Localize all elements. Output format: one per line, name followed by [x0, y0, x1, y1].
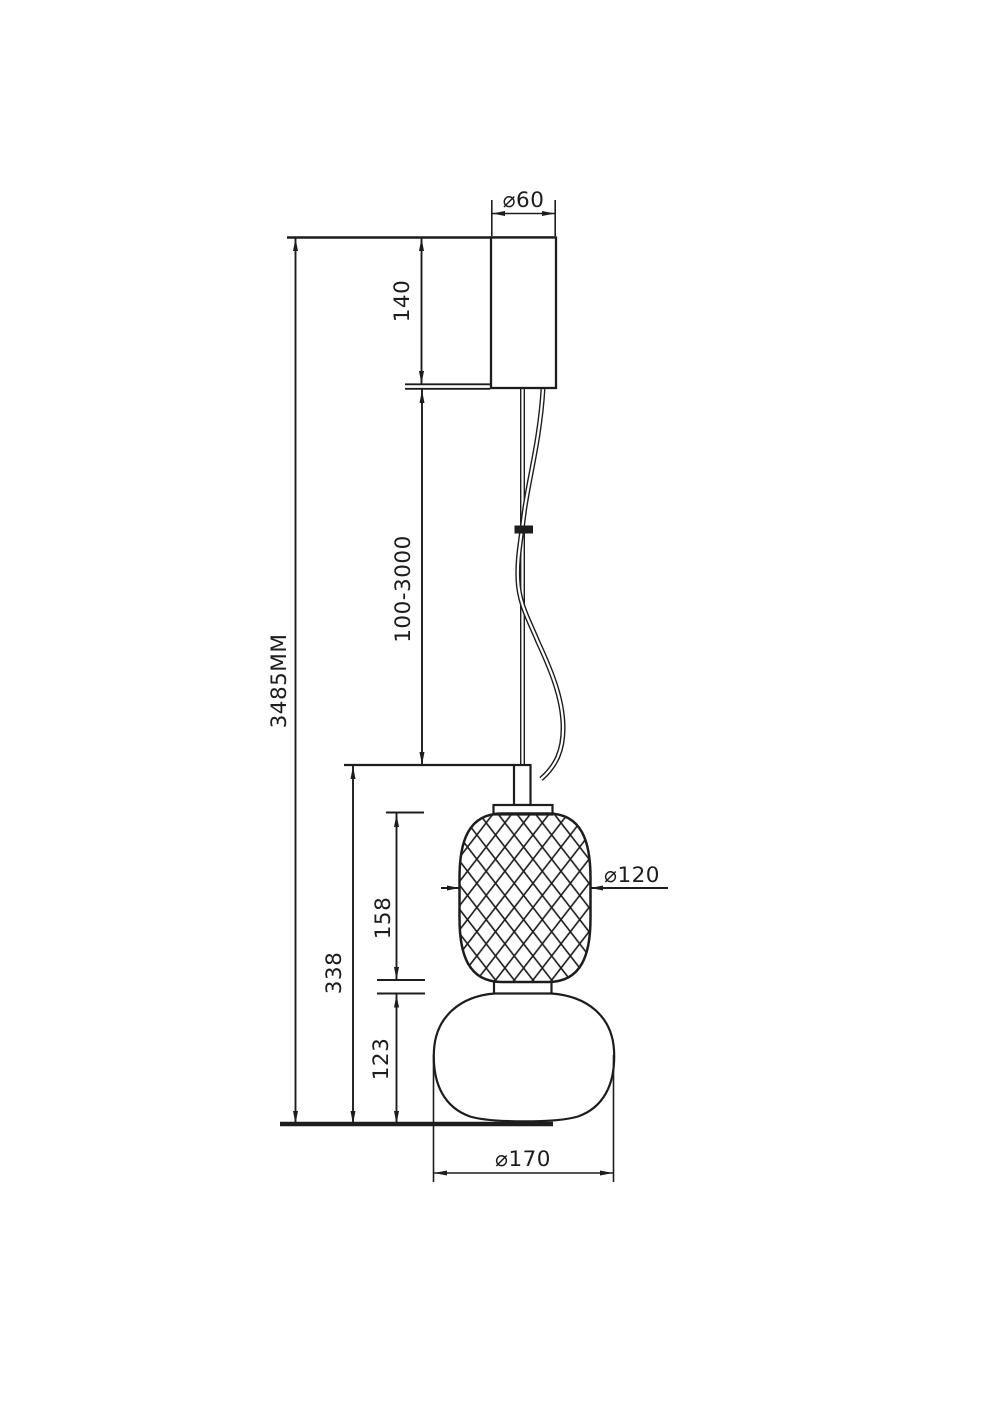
- canopy-diameter-label: ⌀60: [503, 188, 545, 213]
- mesh-shade: [460, 814, 591, 983]
- mesh-height-label: 158: [371, 897, 396, 940]
- arrow-up-icon: [394, 995, 399, 1008]
- mesh-diameter-label: ⌀120: [604, 863, 660, 888]
- suspension-length-label: 100-3000: [391, 535, 416, 643]
- arrow-up-icon: [419, 238, 424, 251]
- arrow-down-icon: [419, 371, 424, 384]
- body-height-label: 338: [322, 952, 347, 995]
- canopy: [491, 238, 556, 389]
- arrow-right-icon: [447, 886, 460, 891]
- stem: [514, 765, 531, 805]
- canopy-height-label: 140: [390, 280, 415, 323]
- glass-shade: [434, 994, 614, 1122]
- total-height-label: 3485MM: [267, 634, 292, 729]
- arrow-down-icon: [420, 752, 425, 765]
- pendant-lamp-dimension-drawing: ⌀60 140 100-3000 3485MM 338 158 123 ⌀120…: [0, 0, 992, 1403]
- arrow-left-icon: [591, 886, 604, 891]
- glass-height-label: 123: [369, 1038, 394, 1081]
- glass-diameter-label: ⌀170: [495, 1147, 551, 1172]
- arrow-down-icon: [394, 967, 399, 980]
- arrow-right-icon: [600, 1171, 613, 1176]
- arrow-up-icon: [420, 390, 425, 403]
- arrow-up-icon: [293, 238, 298, 251]
- cord-clip: [515, 526, 534, 534]
- technical-drawing-page: ⌀60 140 100-3000 3485MM 338 158 123 ⌀120…: [0, 0, 992, 1403]
- arrow-left-icon: [434, 1171, 447, 1176]
- arrow-up-icon: [351, 766, 356, 779]
- arrow-up-icon: [394, 814, 399, 827]
